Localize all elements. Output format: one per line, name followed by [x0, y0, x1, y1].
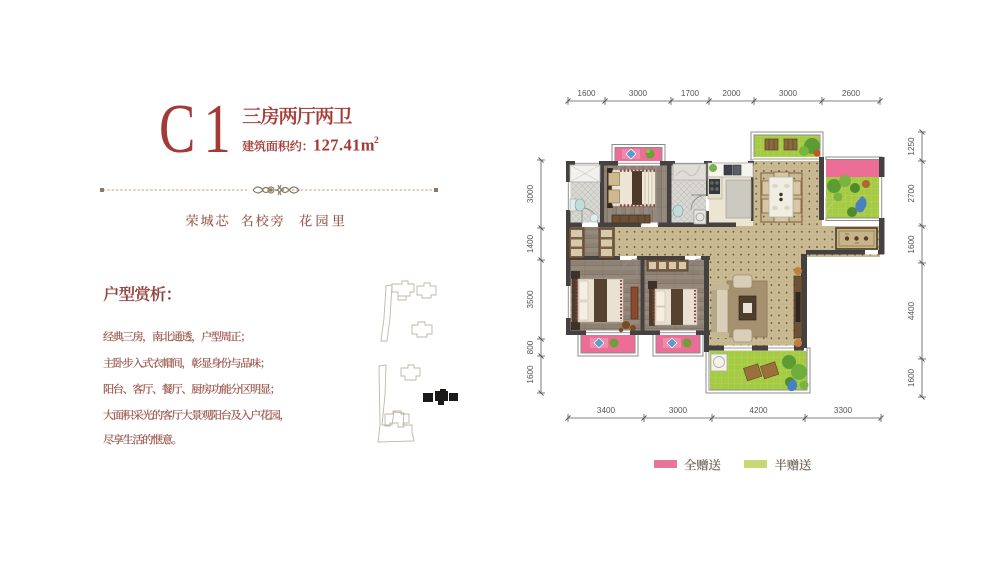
- svg-text:3400: 3400: [597, 406, 616, 415]
- svg-text:3500: 3500: [526, 290, 535, 309]
- svg-text:2600: 2600: [842, 89, 861, 98]
- svg-text:1600: 1600: [577, 89, 596, 98]
- svg-text:1250: 1250: [907, 137, 916, 156]
- svg-text:3000: 3000: [526, 184, 535, 203]
- svg-text:1700: 1700: [681, 89, 700, 98]
- svg-text:3300: 3300: [834, 406, 853, 415]
- svg-text:800: 800: [526, 340, 535, 354]
- svg-text:1400: 1400: [526, 234, 535, 253]
- svg-text:1: 1: [203, 90, 230, 168]
- svg-text:2000: 2000: [722, 89, 741, 98]
- svg-text:1600: 1600: [907, 235, 916, 254]
- svg-text:1600: 1600: [526, 365, 535, 384]
- svg-text:3000: 3000: [669, 406, 688, 415]
- svg-text:C: C: [159, 90, 195, 168]
- svg-text:2: 2: [374, 136, 379, 146]
- svg-text:2700: 2700: [907, 184, 916, 203]
- svg-text:1600: 1600: [907, 368, 916, 387]
- svg-text:3000: 3000: [779, 89, 798, 98]
- svg-text:3000: 3000: [629, 89, 648, 98]
- svg-text:4400: 4400: [907, 301, 916, 320]
- svg-text:4200: 4200: [749, 406, 768, 415]
- svg-text:127.41m: 127.41m: [313, 136, 375, 155]
